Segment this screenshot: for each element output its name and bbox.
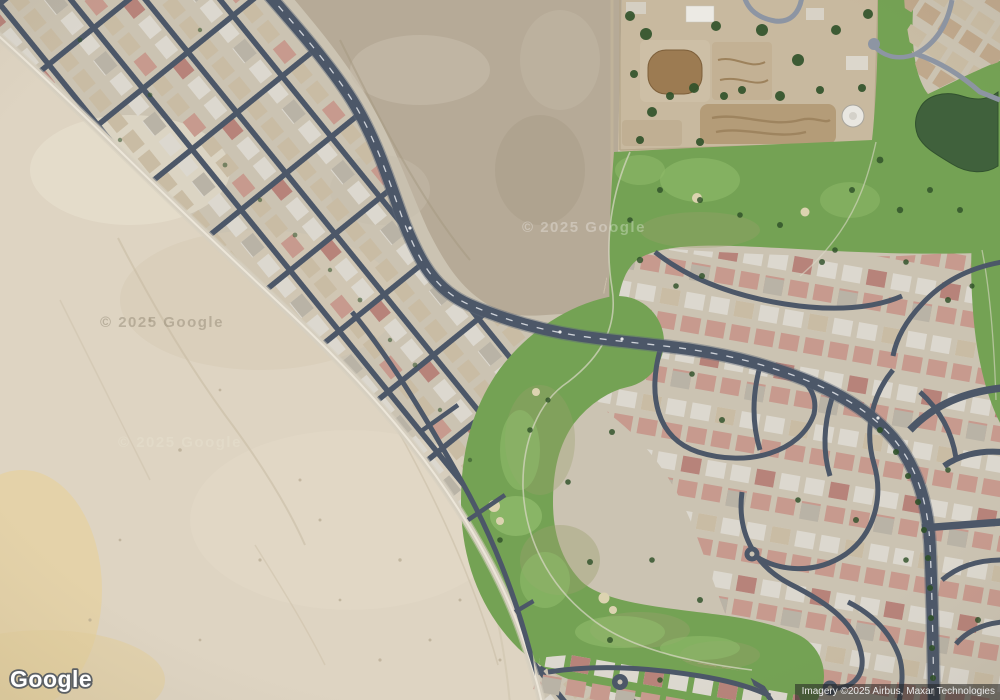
satellite-imagery <box>0 0 1000 700</box>
photo-vignette <box>0 0 1000 700</box>
google-logo[interactable]: Google <box>6 662 116 696</box>
google-logo-text: Google <box>10 666 92 692</box>
map-viewport[interactable]: © 2025 Google © 2025 Google © 2025 Googl… <box>0 0 1000 700</box>
attribution-bar: Imagery ©2025 Airbus, Maxar Technologies <box>795 684 1000 700</box>
attribution-text: Imagery ©2025 Airbus, Maxar Technologies <box>802 686 995 697</box>
